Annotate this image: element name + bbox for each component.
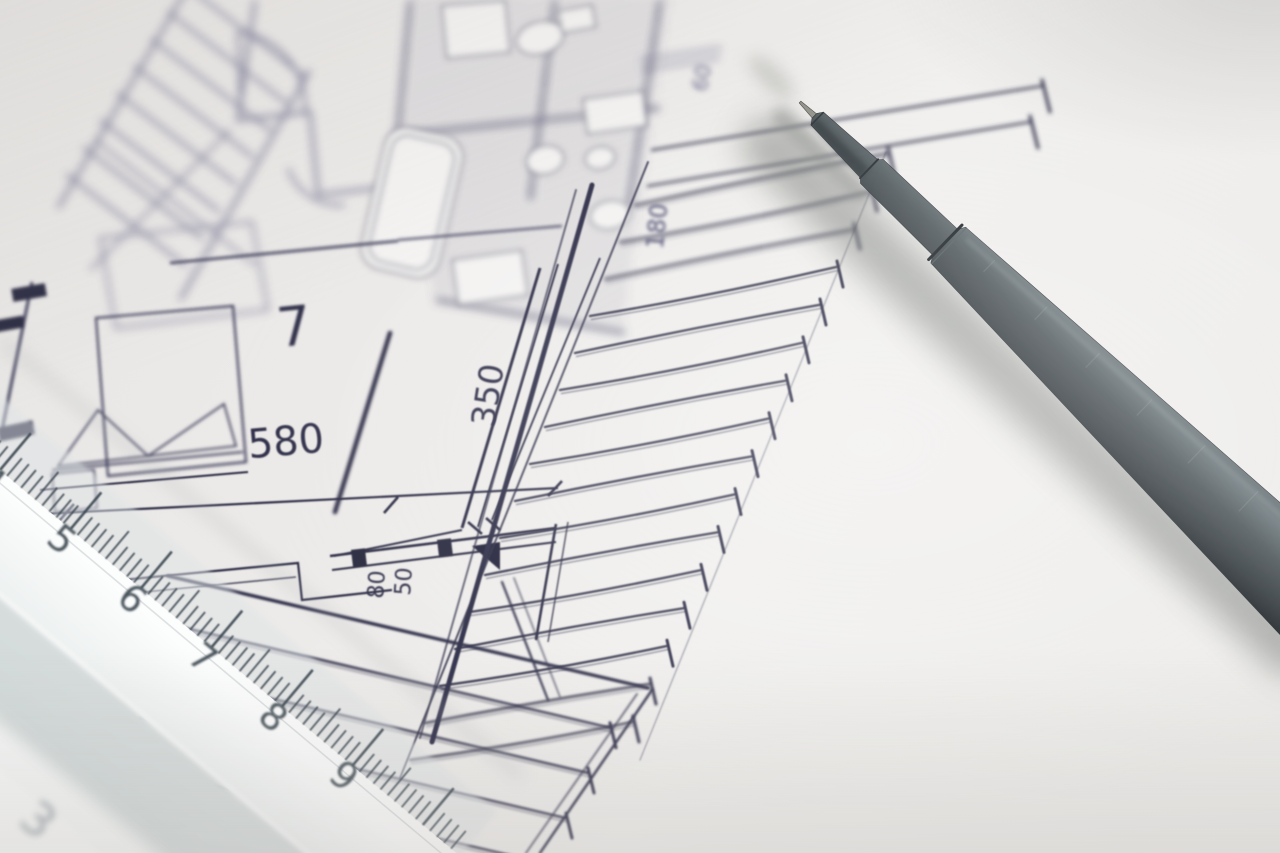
door-jamb xyxy=(437,538,453,558)
stair-tread-line xyxy=(560,343,802,390)
photo-blueprint-scene: 7 580 350 80 50 180 60 456789 3 xyxy=(0,0,1280,853)
dimension-350-label: 350 xyxy=(463,361,511,429)
dimension-580-label: 580 xyxy=(246,416,326,468)
stair-tread-line xyxy=(530,419,768,464)
stair-tread-line xyxy=(455,608,683,649)
dimension-80-label: 80 xyxy=(364,570,391,600)
tread-end-tick xyxy=(684,602,690,628)
pen-tip-shadow xyxy=(742,48,800,106)
tread-end-tick xyxy=(667,640,673,666)
tread-end-tick xyxy=(718,526,724,552)
tread-end-tick xyxy=(752,451,758,477)
fineliner-pen xyxy=(696,17,1280,709)
dimension-180-label: 180 xyxy=(641,202,674,250)
stair-tread-line xyxy=(515,457,751,501)
hatch-right-wall-inner xyxy=(526,694,637,853)
shower-tray xyxy=(442,1,510,58)
pillow-triangle xyxy=(148,404,236,456)
edge-tick xyxy=(1030,116,1038,148)
door-jamb xyxy=(351,548,367,568)
toilet-tank xyxy=(558,5,595,33)
staircase-top-left-drawing xyxy=(58,0,310,328)
hatch-end-tick xyxy=(566,813,572,838)
blueprint-drawing: 7 580 350 80 50 180 60 456789 3 xyxy=(0,0,1280,853)
cistern xyxy=(583,91,647,134)
dimension-60-label: 60 xyxy=(688,63,716,93)
dimension-50-label: 50 xyxy=(391,567,418,597)
stair-direction-line xyxy=(95,140,255,265)
room-number-label: 7 xyxy=(274,293,315,359)
stair-tread-echo xyxy=(562,346,804,393)
edge-tick xyxy=(1042,80,1050,112)
pen-tip xyxy=(798,100,817,118)
stair-tread-echo xyxy=(457,612,685,653)
pen-shadow xyxy=(730,107,1280,688)
wall-stub xyxy=(335,333,390,512)
tread-end-tick xyxy=(701,564,707,590)
tread-end-tick xyxy=(633,716,639,742)
stair-tread-echo xyxy=(487,536,719,579)
vanity xyxy=(452,250,528,304)
stair-tread-line xyxy=(410,722,632,760)
window-symbol xyxy=(11,283,47,302)
